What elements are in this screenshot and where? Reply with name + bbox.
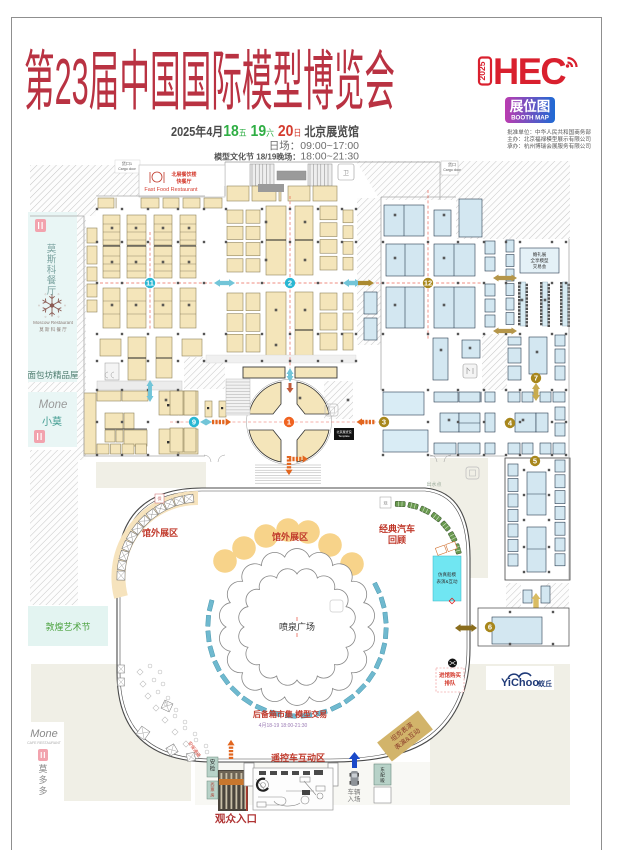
svg-text:12: 12 bbox=[424, 279, 432, 288]
svg-text:承办：杭州博瑞会展服务有限公司: 承办：杭州博瑞会展服务有限公司 bbox=[507, 142, 591, 150]
svg-text:Mone: Mone bbox=[39, 399, 68, 411]
svg-text:经典汽车: 经典汽车 bbox=[379, 523, 415, 534]
svg-text:遥控车互动区: 遥控车互动区 bbox=[271, 752, 325, 763]
svg-text:BOOTH MAP: BOOTH MAP bbox=[511, 115, 549, 122]
svg-text:馆外展区: 馆外展区 bbox=[142, 527, 178, 538]
svg-text:卫: 卫 bbox=[343, 170, 349, 177]
svg-text:9: 9 bbox=[192, 418, 196, 427]
svg-text:观: 观 bbox=[384, 501, 388, 506]
svg-text:Cargo door: Cargo door bbox=[443, 168, 461, 172]
svg-text:出水点: 出水点 bbox=[426, 481, 441, 488]
svg-text:11: 11 bbox=[146, 279, 154, 288]
svg-text:后备箱市集 模型交易: 后备箱市集 模型交易 bbox=[253, 709, 327, 719]
svg-text:科: 科 bbox=[47, 264, 57, 276]
svg-text:Mone: Mone bbox=[30, 728, 58, 740]
svg-text:表演&互动: 表演&互动 bbox=[436, 578, 458, 585]
svg-text:北展餐饮楼: 北展餐饮楼 bbox=[171, 171, 196, 178]
svg-text:2025: 2025 bbox=[477, 61, 487, 80]
svg-text:莫: 莫 bbox=[47, 243, 57, 255]
svg-text:Cargo door: Cargo door bbox=[118, 167, 136, 171]
svg-text:排队: 排队 bbox=[444, 679, 456, 687]
svg-text:Template: Template bbox=[338, 434, 350, 438]
svg-text:斯: 斯 bbox=[47, 254, 57, 266]
svg-text:货口1: 货口1 bbox=[122, 160, 133, 166]
svg-text:东: 东 bbox=[380, 766, 385, 772]
svg-text:快餐厅: 快餐厅 bbox=[175, 178, 191, 185]
svg-text:展位图: 展位图 bbox=[510, 98, 551, 114]
svg-text:CAFE RESTAURANT: CAFE RESTAURANT bbox=[27, 741, 62, 745]
svg-text:馆外展区: 馆外展区 bbox=[272, 531, 308, 542]
svg-text:7: 7 bbox=[534, 374, 538, 383]
svg-text:第23届中国国际模型博览会: 第23届中国国际模型博览会 bbox=[24, 45, 395, 118]
svg-text:保: 保 bbox=[158, 495, 162, 501]
svg-text:5: 5 bbox=[533, 457, 537, 466]
svg-text:Moscow Restaurant: Moscow Restaurant bbox=[33, 320, 74, 325]
svg-text:安: 安 bbox=[210, 758, 216, 766]
svg-text:4月18-19 18:00-21:30: 4月18-19 18:00-21:30 bbox=[259, 723, 308, 729]
svg-text:模型文化节 18/19晚场：18:00~21:30: 模型文化节 18/19晚场：18:00~21:30 bbox=[214, 151, 359, 163]
svg-text:多: 多 bbox=[38, 774, 47, 785]
svg-text:车辆: 车辆 bbox=[348, 787, 362, 796]
svg-text:蚁丘: 蚁丘 bbox=[538, 679, 552, 688]
svg-text:小莫: 小莫 bbox=[42, 416, 62, 428]
svg-text:回顾: 回顾 bbox=[388, 535, 406, 545]
svg-text:货口: 货口 bbox=[448, 161, 456, 167]
svg-text:餐: 餐 bbox=[47, 275, 57, 287]
svg-text:3: 3 bbox=[382, 418, 386, 427]
svg-text:2025年4月18五 19六 20日 北京展览馆: 2025年4月18五 19六 20日 北京展览馆 bbox=[171, 123, 359, 140]
svg-text:HEC: HEC bbox=[493, 51, 566, 92]
svg-text:仿真船模: 仿真船模 bbox=[438, 571, 456, 578]
svg-text:多: 多 bbox=[38, 785, 47, 796]
svg-text:交易会: 交易会 bbox=[533, 263, 547, 270]
svg-text:检: 检 bbox=[210, 765, 216, 773]
svg-text:YiChoo: YiChoo bbox=[501, 677, 539, 689]
svg-text:全享模型: 全享模型 bbox=[531, 257, 549, 264]
svg-text:2: 2 bbox=[288, 279, 292, 288]
svg-text:观众入口: 观众入口 bbox=[215, 812, 257, 825]
svg-text:主办：北京福禄模型展示有限公司: 主办：北京福禄模型展示有限公司 bbox=[507, 135, 591, 143]
svg-text:1: 1 bbox=[287, 418, 291, 427]
svg-text:进馆购买: 进馆购买 bbox=[439, 671, 462, 679]
svg-text:面包坊精品屋: 面包坊精品屋 bbox=[27, 370, 79, 380]
svg-text:入场: 入场 bbox=[348, 794, 362, 803]
svg-text:莫 斯 科 餐 厅: 莫 斯 科 餐 厅 bbox=[39, 326, 67, 333]
svg-text:敦煌艺术节: 敦煌艺术节 bbox=[45, 621, 90, 632]
svg-text:批准单位：中华人民共和国商务部: 批准单位：中华人民共和国商务部 bbox=[507, 128, 591, 136]
svg-text:6: 6 bbox=[488, 623, 492, 632]
svg-text:婚礼展: 婚礼展 bbox=[533, 251, 547, 258]
svg-text:莫: 莫 bbox=[38, 763, 47, 774]
svg-text:房: 房 bbox=[210, 791, 214, 798]
svg-text:Fast Food Restaurant: Fast Food Restaurant bbox=[144, 187, 198, 193]
svg-text:喷泉广场: 喷泉广场 bbox=[279, 621, 315, 632]
